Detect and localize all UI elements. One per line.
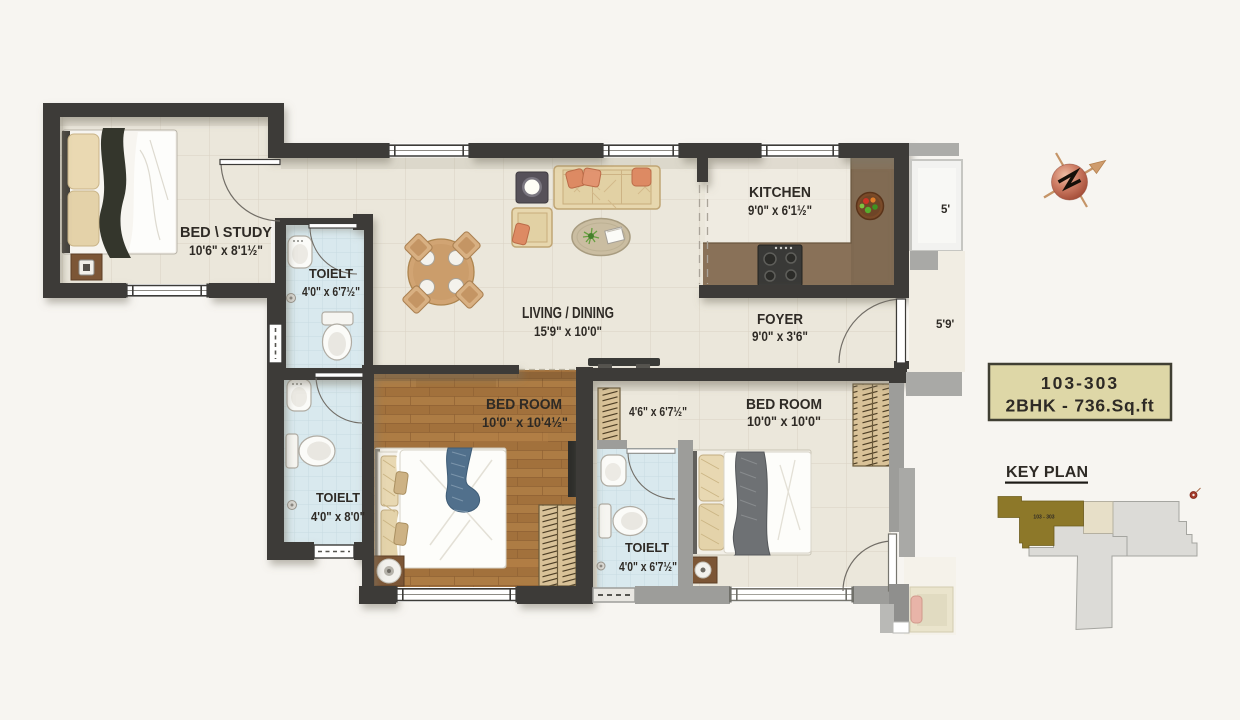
svg-text:TOIELT: TOIELT [625, 540, 669, 555]
svg-text:15'9" x 10'0": 15'9" x 10'0" [534, 323, 602, 339]
svg-text:9'0" x 3'6": 9'0" x 3'6" [752, 329, 808, 344]
svg-text:10'0" x 10'4½": 10'0" x 10'4½" [482, 415, 568, 430]
svg-text:4'6" x 6'7½": 4'6" x 6'7½" [629, 405, 687, 419]
svg-text:KITCHEN: KITCHEN [749, 185, 811, 201]
svg-text:4'0" x 8'0": 4'0" x 8'0" [311, 510, 365, 524]
svg-text:9'0" x 6'1½": 9'0" x 6'1½" [748, 203, 812, 218]
svg-text:KEY PLAN: KEY PLAN [1006, 464, 1088, 481]
svg-text:5'9': 5'9' [936, 319, 955, 331]
svg-text:BED \ STUDY: BED \ STUDY [180, 225, 272, 241]
svg-text:LIVING / DINING: LIVING / DINING [522, 305, 614, 322]
svg-text:103 - 303: 103 - 303 [1033, 515, 1054, 521]
svg-text:103-303: 103-303 [1041, 373, 1119, 393]
svg-text:BED ROOM: BED ROOM [486, 397, 562, 413]
svg-text:TOIELT: TOIELT [316, 490, 360, 505]
svg-text:5': 5' [941, 204, 950, 216]
svg-text:TOIELT: TOIELT [309, 266, 353, 281]
svg-text:BED ROOM: BED ROOM [746, 397, 822, 413]
svg-text:FOYER: FOYER [757, 312, 803, 328]
svg-text:4'0" x 6'7½": 4'0" x 6'7½" [619, 560, 677, 574]
svg-text:10'6" x 8'1½": 10'6" x 8'1½" [189, 243, 263, 258]
svg-text:10'0" x 10'0": 10'0" x 10'0" [747, 414, 821, 429]
svg-text:4'0" x 6'7½": 4'0" x 6'7½" [302, 285, 360, 299]
svg-text:2BHK - 736.Sq.ft: 2BHK - 736.Sq.ft [1006, 396, 1155, 416]
